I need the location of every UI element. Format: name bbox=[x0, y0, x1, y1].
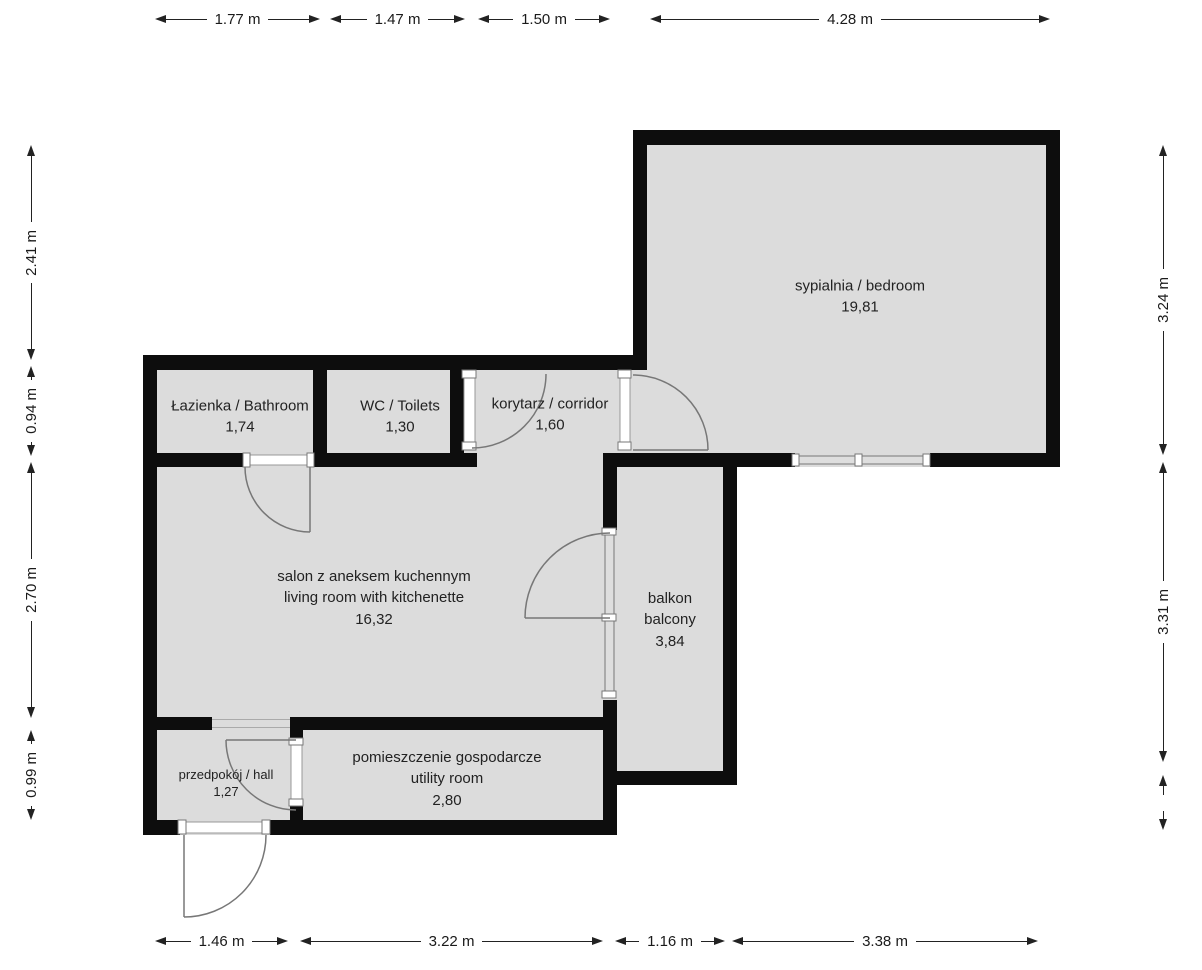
wall bbox=[603, 453, 617, 530]
dimension-line bbox=[311, 941, 421, 942]
dimension-label: 0.99 m bbox=[23, 744, 40, 806]
dimension-label: 1.77 m bbox=[207, 11, 269, 28]
dimension-bottom-1: 1.46 m bbox=[155, 930, 288, 952]
dimension-left-3: 2.70 m bbox=[20, 462, 42, 718]
wall bbox=[450, 370, 464, 467]
wall bbox=[143, 355, 157, 835]
door-leaf bbox=[464, 372, 475, 450]
arrow-left-icon bbox=[155, 937, 166, 945]
room-label-bathroom: Łazienka / Bathroom 1,74 bbox=[171, 396, 309, 439]
room-label-balcony: balkon balcony 3,84 bbox=[644, 588, 696, 652]
room-area: 1,27 bbox=[179, 784, 274, 801]
wall bbox=[617, 453, 795, 467]
arrow-left-icon bbox=[478, 15, 489, 23]
dimension-left-4: 0.99 m bbox=[20, 730, 42, 820]
room-name: salon z aneksem kuchennym bbox=[277, 566, 470, 587]
arrow-right-icon bbox=[454, 15, 465, 23]
dimension-bottom-2: 3.22 m bbox=[300, 930, 603, 952]
room-name: balkon bbox=[644, 588, 696, 609]
dimension-label: 2.70 m bbox=[23, 559, 40, 621]
room-name: WC / Toilets bbox=[360, 396, 440, 417]
room-area: 3,84 bbox=[644, 631, 696, 652]
wall bbox=[143, 355, 647, 370]
dimension-label: 3.22 m bbox=[421, 933, 483, 950]
dimension-bottom-3: 1.16 m bbox=[615, 930, 725, 952]
wall bbox=[143, 453, 245, 467]
dimension-line bbox=[31, 621, 32, 707]
dimension-line bbox=[1163, 643, 1164, 751]
room-name-en: balcony bbox=[644, 609, 696, 630]
wall bbox=[930, 453, 1060, 467]
arrow-right-icon bbox=[592, 937, 603, 945]
door-leaf bbox=[291, 740, 302, 806]
dimension-line bbox=[661, 19, 819, 20]
door-leaf bbox=[245, 455, 310, 465]
arrow-down-icon bbox=[1159, 751, 1167, 762]
dimension-top-4: 4.28 m bbox=[650, 8, 1050, 30]
room-label-bedroom: sypialnia / bedroom 19,81 bbox=[795, 276, 925, 319]
wall bbox=[603, 700, 617, 835]
room-label-living-room: salon z aneksem kuchennym living room wi… bbox=[277, 566, 470, 630]
wall bbox=[270, 820, 617, 835]
window-frame bbox=[792, 454, 799, 466]
dimension-top-3: 1.50 m bbox=[478, 8, 610, 30]
dimension-label: 3.31 m bbox=[1155, 581, 1172, 643]
room-area: 1,74 bbox=[171, 417, 309, 438]
arrow-up-icon bbox=[27, 462, 35, 473]
dimension-line bbox=[916, 941, 1027, 942]
room-name: przedpokój / hall bbox=[179, 767, 274, 784]
dimension-label: 3.38 m bbox=[854, 933, 916, 950]
arrow-right-icon bbox=[309, 15, 320, 23]
dimension-top-2: 1.47 m bbox=[330, 8, 465, 30]
wall bbox=[723, 453, 737, 785]
dimension-label: 1.50 m bbox=[513, 11, 575, 28]
room-name: korytarz / corridor bbox=[492, 394, 609, 415]
arrow-right-icon bbox=[599, 15, 610, 23]
door-swing-arc bbox=[184, 835, 266, 917]
dimension-line bbox=[626, 941, 639, 942]
wall bbox=[290, 806, 303, 820]
door-frame bbox=[618, 442, 631, 450]
arrow-left-icon bbox=[330, 15, 341, 23]
room-name: pomieszczenie gospodarcze bbox=[352, 747, 541, 768]
dimension-line bbox=[31, 156, 32, 222]
room-label-corridor: korytarz / corridor 1,60 bbox=[492, 394, 609, 437]
arrow-up-icon bbox=[1159, 145, 1167, 156]
arrow-left-icon bbox=[615, 937, 626, 945]
arrow-left-icon bbox=[650, 15, 661, 23]
arrow-left-icon bbox=[155, 15, 166, 23]
arrow-left-icon bbox=[300, 937, 311, 945]
room-area: 1,60 bbox=[492, 415, 609, 436]
room-name: sypialnia / bedroom bbox=[795, 276, 925, 297]
arrow-down-icon bbox=[27, 349, 35, 360]
wall bbox=[157, 717, 212, 730]
room-name-en: utility room bbox=[352, 768, 541, 789]
door-leaf bbox=[180, 822, 270, 833]
dimension-line bbox=[743, 941, 854, 942]
arrow-up-icon bbox=[27, 730, 35, 741]
room-area: 16,32 bbox=[277, 609, 470, 630]
window-frame bbox=[602, 691, 616, 698]
dimension-label: 1.46 m bbox=[191, 933, 253, 950]
dimension-label: 2.41 m bbox=[23, 222, 40, 284]
dimension-top-1: 1.77 m bbox=[155, 8, 320, 30]
room-area: 2,80 bbox=[352, 790, 541, 811]
wall bbox=[1046, 130, 1060, 467]
door-leaf bbox=[620, 372, 630, 450]
dimension-line bbox=[1163, 811, 1164, 820]
wall bbox=[617, 771, 737, 785]
arrow-down-icon bbox=[1159, 444, 1167, 455]
arrow-down-icon bbox=[27, 707, 35, 718]
arrow-right-icon bbox=[1039, 15, 1050, 23]
wall bbox=[290, 717, 617, 730]
dimension-line bbox=[1163, 331, 1164, 444]
dimension-line bbox=[1163, 473, 1164, 581]
door-frame bbox=[289, 738, 303, 745]
arrow-up-icon bbox=[1159, 775, 1167, 786]
room-area: 19,81 bbox=[795, 297, 925, 318]
dimension-right-3 bbox=[1152, 775, 1174, 830]
wall bbox=[313, 370, 327, 467]
dimension-line bbox=[1163, 156, 1164, 269]
dimension-line bbox=[428, 19, 454, 20]
door-frame bbox=[462, 370, 476, 378]
door-frame bbox=[243, 453, 250, 467]
door-frame bbox=[618, 370, 631, 378]
dimension-line bbox=[881, 19, 1039, 20]
dimension-line bbox=[31, 473, 32, 559]
arrow-left-icon bbox=[732, 937, 743, 945]
dimension-label: 0.94 m bbox=[23, 380, 40, 442]
dimension-right-2: 3.31 m bbox=[1152, 462, 1174, 762]
arrow-up-icon bbox=[1159, 462, 1167, 473]
dimension-line bbox=[166, 19, 207, 20]
dimension-bottom-4: 3.38 m bbox=[732, 930, 1038, 952]
wall bbox=[633, 130, 647, 370]
dimension-line bbox=[268, 19, 309, 20]
arrow-right-icon bbox=[1027, 937, 1038, 945]
room-label-wc: WC / Toilets 1,30 bbox=[360, 396, 440, 439]
bedroom-window bbox=[792, 454, 930, 466]
dimension-line bbox=[489, 19, 513, 20]
dimension-label: 3.24 m bbox=[1155, 269, 1172, 331]
arrow-up-icon bbox=[27, 145, 35, 156]
window-frame bbox=[923, 454, 930, 466]
room-area: 1,30 bbox=[360, 417, 440, 438]
dimension-line bbox=[575, 19, 599, 20]
room-label-hall: przedpokój / hall 1,27 bbox=[179, 767, 274, 801]
room-label-utility-room: pomieszczenie gospodarcze utility room 2… bbox=[352, 747, 541, 811]
arrow-right-icon bbox=[277, 937, 288, 945]
door-frame bbox=[289, 799, 303, 806]
dimension-label: 1.16 m bbox=[639, 933, 701, 950]
dimension-line bbox=[482, 941, 592, 942]
floor-plan-drawing bbox=[0, 0, 1202, 970]
dimension-left-1: 2.41 m bbox=[20, 145, 42, 360]
floor-plan: sypialnia / bedroom 19,81 Łazienka / Bat… bbox=[0, 0, 1202, 970]
dimension-right-1: 3.24 m bbox=[1152, 145, 1174, 455]
arrow-down-icon bbox=[1159, 819, 1167, 830]
arrow-down-icon bbox=[27, 809, 35, 820]
dimension-line bbox=[341, 19, 367, 20]
dimension-line bbox=[166, 941, 191, 942]
dimension-line bbox=[252, 941, 277, 942]
arrow-right-icon bbox=[714, 937, 725, 945]
dimension-line bbox=[1163, 786, 1164, 795]
dimension-label: 1.47 m bbox=[367, 11, 429, 28]
dimension-label: 4.28 m bbox=[819, 11, 881, 28]
door-frame bbox=[178, 820, 186, 834]
dimension-line bbox=[701, 941, 714, 942]
arrow-up-icon bbox=[27, 366, 35, 377]
window-frame bbox=[855, 454, 862, 466]
dimension-line bbox=[31, 283, 32, 349]
door-frame bbox=[462, 442, 476, 450]
room-name-en: living room with kitchenette bbox=[277, 587, 470, 608]
dimension-left-2: 0.94 m bbox=[20, 366, 42, 456]
wall bbox=[633, 130, 1060, 145]
door-frame bbox=[307, 453, 314, 467]
arrow-down-icon bbox=[27, 445, 35, 456]
room-name: Łazienka / Bathroom bbox=[171, 396, 309, 417]
door-frame bbox=[262, 820, 270, 834]
